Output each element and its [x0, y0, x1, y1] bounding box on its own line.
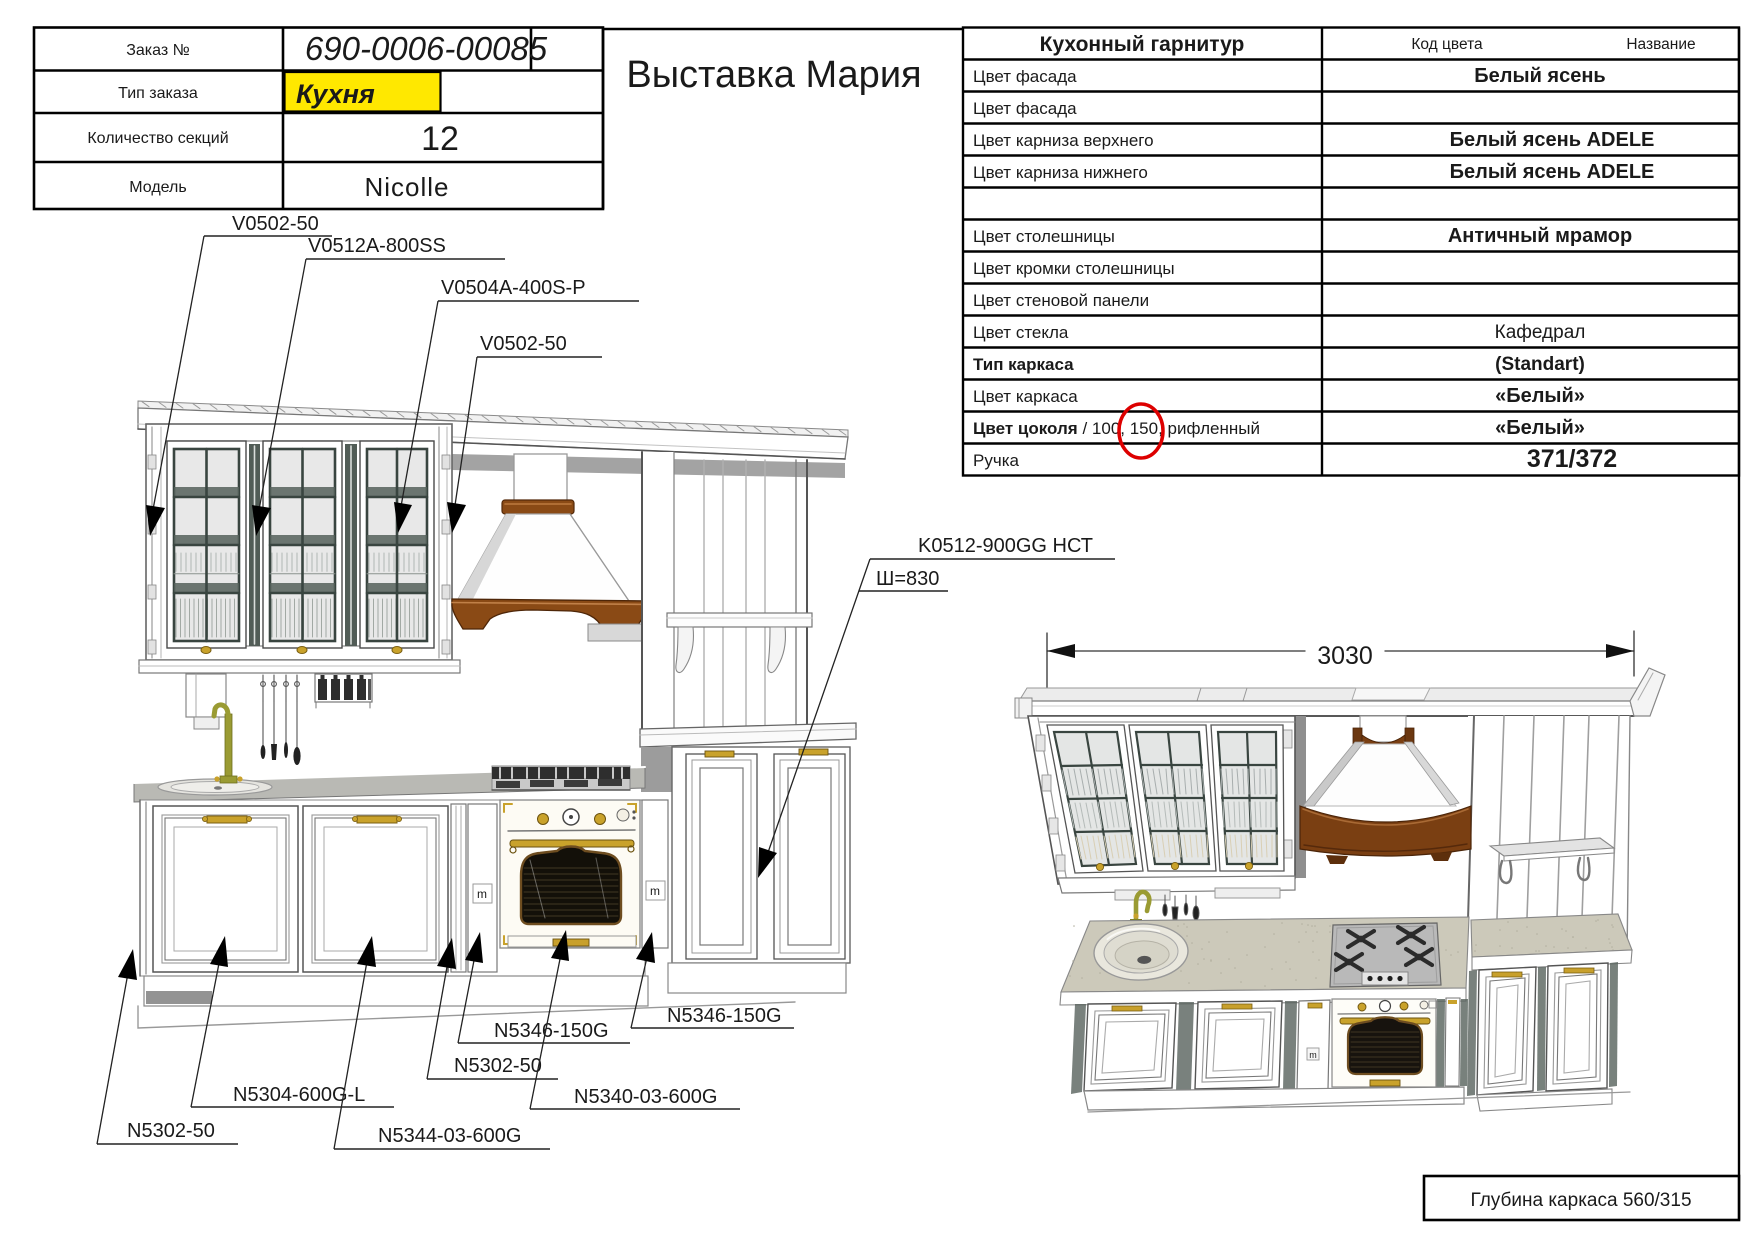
svg-text:Количество секций: Количество секций [87, 130, 228, 147]
svg-text:Код цвета: Код цвета [1411, 36, 1483, 53]
svg-text:N5346-150G: N5346-150G [667, 1005, 782, 1027]
svg-text:690-0006-00085: 690-0006-00085 [305, 30, 548, 67]
svg-text:N5344-03-600G: N5344-03-600G [378, 1125, 521, 1147]
svg-text:Белый ясень ADELE: Белый ясень ADELE [1450, 129, 1655, 151]
svg-text:m: m [650, 884, 660, 898]
svg-text:Ш=830: Ш=830 [876, 568, 939, 590]
svg-text:Цвет карниза верхнего: Цвет карниза верхнего [973, 131, 1154, 150]
svg-text:Цвет кромки столешницы: Цвет кромки столешницы [973, 259, 1175, 278]
svg-text:Белый ясень ADELE: Белый ясень ADELE [1450, 161, 1655, 183]
svg-text:Заказ №: Заказ № [126, 42, 190, 59]
svg-text:12: 12 [421, 120, 459, 158]
svg-text:K0512-900GG НСТ: K0512-900GG НСТ [918, 535, 1093, 557]
svg-text:V0502-50: V0502-50 [232, 213, 319, 235]
svg-text:Цвет карниза нижнего: Цвет карниза нижнего [973, 163, 1148, 182]
svg-text:V0502-50: V0502-50 [480, 333, 567, 355]
svg-text:Цвет цоколя / 100, 150, рифлен: Цвет цоколя / 100, 150, рифленный [973, 419, 1260, 438]
svg-text:V0504A-400S-P: V0504A-400S-P [441, 277, 586, 299]
svg-text:«Белый»: «Белый» [1495, 417, 1585, 439]
svg-text:Кафедрал: Кафедрал [1495, 322, 1586, 343]
svg-text:Цвет фасада: Цвет фасада [973, 99, 1077, 118]
svg-text:Кухонный гарнитур: Кухонный гарнитур [1040, 33, 1245, 56]
svg-text:Ручка: Ручка [973, 451, 1020, 470]
svg-text:Модель: Модель [129, 179, 186, 196]
svg-text:Nicolle: Nicolle [364, 172, 449, 202]
svg-text:Выставка Мария: Выставка Мария [626, 54, 921, 96]
svg-text:N5302-50: N5302-50 [454, 1055, 542, 1077]
svg-text:N5302-50: N5302-50 [127, 1120, 215, 1142]
svg-text:Кухня: Кухня [296, 79, 375, 109]
svg-text:m: m [1309, 1050, 1317, 1060]
svg-text:Цвет каркаса: Цвет каркаса [973, 387, 1078, 406]
svg-text:Цвет столешницы: Цвет столешницы [973, 227, 1115, 246]
svg-text:Античный мрамор: Античный мрамор [1448, 225, 1632, 247]
svg-text:Название: Название [1626, 36, 1695, 53]
svg-text:Цвет стеновой панели: Цвет стеновой панели [973, 291, 1149, 310]
svg-text:Тип каркаса: Тип каркаса [973, 355, 1074, 374]
svg-text:371/372: 371/372 [1527, 445, 1617, 473]
svg-text:3030: 3030 [1317, 642, 1373, 670]
svg-text:Глубина каркаса 560/315: Глубина каркаса 560/315 [1470, 1190, 1691, 1211]
svg-text:N5340-03-600G: N5340-03-600G [574, 1086, 717, 1108]
svg-text:Цвет фасада: Цвет фасада [973, 67, 1077, 86]
svg-text:V0512A-800SS: V0512A-800SS [308, 235, 446, 257]
svg-text:(Standart): (Standart) [1495, 354, 1585, 375]
svg-text:Белый ясень: Белый ясень [1474, 65, 1605, 87]
svg-text:«Белый»: «Белый» [1495, 385, 1585, 407]
svg-text:Цвет стекла: Цвет стекла [973, 323, 1069, 342]
svg-text:Тип заказа: Тип заказа [118, 85, 198, 102]
svg-text:m: m [477, 887, 487, 901]
svg-text:N5346-150G: N5346-150G [494, 1020, 609, 1042]
